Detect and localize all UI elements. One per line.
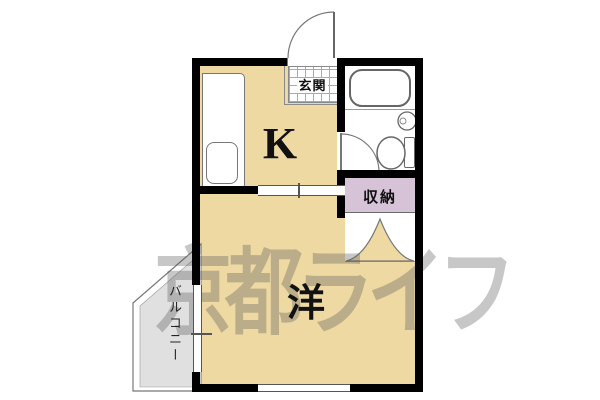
window-tick: [191, 333, 212, 335]
wall-left-upper: [192, 58, 200, 285]
floor-plan: 京都ライフ K 洋 収納 玄関 バルコニー: [0, 0, 600, 400]
wall-bottom-right: [350, 384, 423, 392]
washbasin-icon: [398, 112, 416, 130]
entrance-label: 玄関: [289, 75, 336, 94]
sliding-door-tick: [298, 183, 300, 198]
wall-kitchen-bath: [337, 58, 345, 132]
toilet-icon: [377, 137, 405, 169]
balcony-label: バルコニー: [165, 284, 184, 388]
wall-left-lower: [192, 372, 200, 392]
bathroom-door-swing-arc: [341, 134, 379, 172]
storage-label: 収納: [345, 186, 415, 207]
sliding-partition-icon: [258, 185, 345, 196]
wall-top-right: [337, 58, 423, 66]
wall-kitchen-west: [192, 186, 258, 194]
western-room-label: 洋: [274, 282, 338, 326]
wall-right: [415, 58, 423, 392]
entrance-door-swing-arc: [288, 12, 334, 58]
kitchen-label: K: [250, 118, 310, 170]
balcony-sliding-window-icon: [193, 285, 202, 372]
wall-top-left: [192, 58, 287, 66]
wall-bottom-left: [192, 384, 258, 392]
bottom-window-icon: [258, 384, 350, 392]
wall-bath-storage: [337, 170, 423, 178]
